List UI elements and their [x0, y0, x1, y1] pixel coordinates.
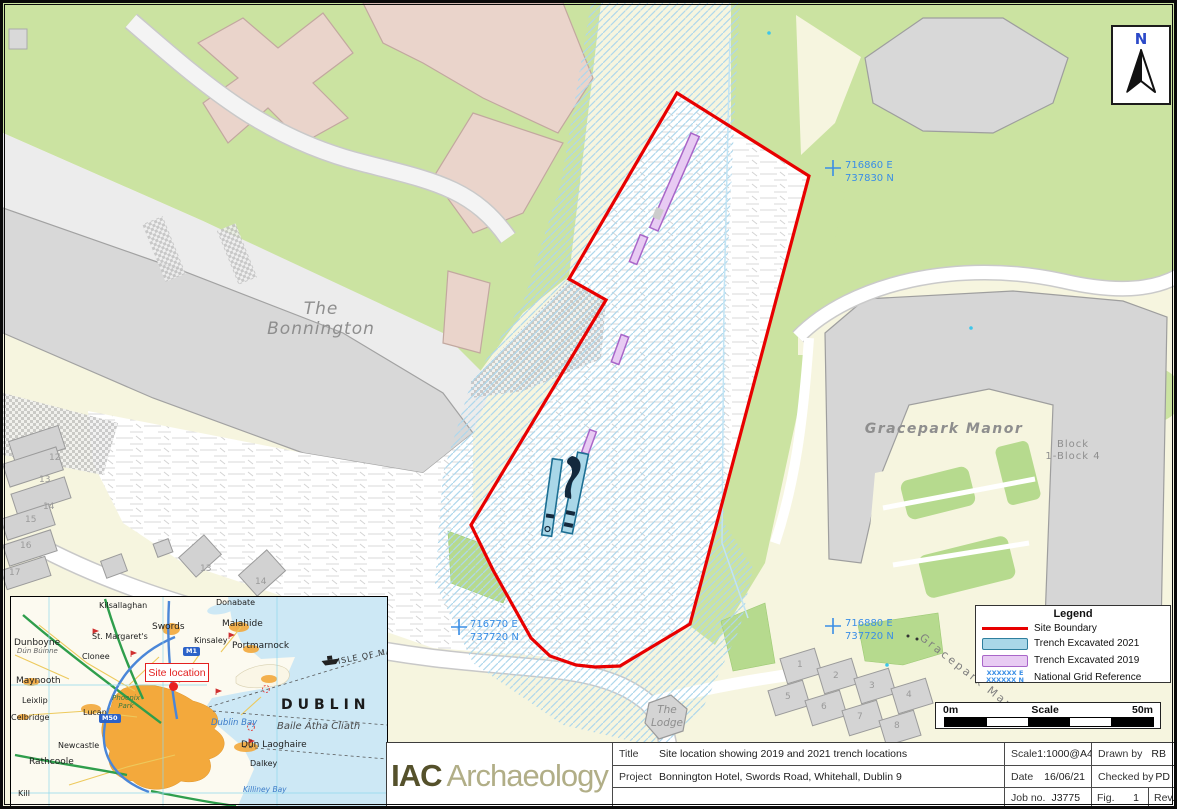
legend-title: Legend	[976, 608, 1170, 620]
date-label: Date	[1011, 771, 1033, 783]
title-label: Title	[619, 748, 659, 760]
house-number: 14	[255, 577, 266, 587]
legend-row-grid-ref: XXXXXX E XXXXXX N National Grid Referenc…	[976, 669, 1170, 685]
house-number: 16	[20, 541, 31, 551]
grid-ref-swatch: XXXXXX E XXXXXX N	[976, 670, 1034, 685]
inset-town: Swords	[152, 622, 185, 632]
figure-sheet: Gracepark Man The Bonnington Gracepark M…	[0, 0, 1177, 809]
fig-value: 1	[1133, 792, 1139, 804]
scale-value: 1:1000@A4	[1037, 748, 1091, 760]
rev-value: -	[1175, 792, 1176, 804]
site-location-marker: Site location	[145, 663, 209, 682]
m50-shield: M50	[99, 714, 121, 723]
scale-cell: Scale 1:1000@A4	[1004, 743, 1091, 765]
inset-town: Rathcoole	[29, 757, 74, 767]
house-number: 14	[43, 502, 54, 512]
project-label: Project	[619, 771, 659, 783]
label-lodge-line1: The	[641, 704, 693, 717]
checked-label: Checked by	[1098, 771, 1153, 783]
inset-town: Kinsaley	[194, 636, 228, 645]
gridref-1-n: 737830 N	[845, 172, 894, 185]
inset-town: Clonee	[82, 652, 110, 661]
label-bonnington: The Bonnington	[241, 299, 401, 340]
checked-cell: Checked by PD	[1091, 765, 1176, 787]
label-lodge: The Lodge	[641, 704, 693, 729]
inset-town: Dún Laoghaire	[241, 740, 307, 750]
scale-label: Scale	[1011, 748, 1037, 760]
inset-town: Kilsallaghan	[99, 601, 147, 610]
inset-killiney-bay: Killiney Bay	[243, 785, 287, 794]
logo: IAC Archaeology	[387, 743, 612, 808]
inset-town-irish: Dún Búinne	[17, 647, 58, 655]
inset-town: Donabate	[216, 598, 255, 607]
job-value: J3775	[1051, 792, 1080, 804]
trench-2021-swatch	[976, 638, 1034, 650]
title-block: IAC Archaeology Title Site location show…	[386, 742, 1175, 807]
title-value: Site location showing 2019 and 2021 tren…	[659, 748, 907, 760]
rev-cell: Rev. -	[1148, 788, 1176, 808]
inset-map: Donabate Kilsallaghan Swords Malahide St…	[10, 596, 388, 809]
checked-value: PD	[1155, 771, 1170, 783]
tl-grey-rect	[9, 29, 27, 49]
legend: Legend Site Boundary Trench Excavated 20…	[975, 605, 1171, 683]
north-arrow-icon	[1121, 48, 1161, 96]
legend-row-trench-2019: Trench Excavated 2019	[976, 652, 1170, 669]
scale-end: 50m	[1132, 704, 1153, 716]
drawn-label: Drawn by	[1098, 748, 1142, 760]
scale-start: 0m	[943, 704, 958, 716]
empty-cell	[612, 787, 1004, 808]
plot-number: 4	[906, 690, 912, 700]
plot-number: 3	[869, 681, 875, 691]
north-label: N	[1135, 30, 1148, 48]
gridref-1: 716860 E 737830 N	[845, 159, 894, 185]
gridref-2-e: 716770 E	[470, 618, 519, 631]
legend-label: National Grid Reference	[1034, 672, 1141, 683]
title-cell: Title Site location showing 2019 and 202…	[612, 743, 1004, 765]
label-block-line2: 1-Block 4	[1031, 451, 1115, 463]
label-gracepark-manor: Gracepark Manor	[861, 421, 1027, 438]
logo-iac: IAC	[391, 758, 441, 794]
gridref-3-e: 716880 E	[845, 617, 894, 630]
legend-label: Trench Excavated 2019	[1034, 655, 1139, 666]
inset-town: Celbridge	[11, 713, 49, 722]
date-cell: Date 16/06/21	[1004, 765, 1091, 787]
house-number: 13	[200, 564, 211, 574]
plot-number: 2	[833, 671, 839, 681]
legend-label: Site Boundary	[1034, 623, 1097, 634]
inset-city-irish: Baile Átha Cliath	[277, 721, 360, 732]
plot-number: 5	[785, 692, 791, 702]
inset-phoenix-park: Phoenix Park	[104, 694, 148, 710]
m1-shield: M1	[183, 647, 200, 656]
inset-city-label: DUBLIN	[281, 697, 371, 713]
fig-rev-cell: Fig. 1 Rev. -	[1091, 787, 1176, 808]
fig-cell: Fig. 1	[1092, 788, 1148, 808]
scale-bar-box: 0m Scale 50m	[935, 702, 1161, 729]
project-value: Bonnington Hotel, Swords Road, Whitehall…	[659, 771, 902, 783]
scale-title: Scale	[1031, 704, 1058, 716]
plot-number: 8	[894, 721, 900, 731]
house-number: 17	[9, 568, 20, 578]
inset-town: Portmarnock	[232, 641, 289, 651]
fig-label: Fig.	[1097, 792, 1115, 804]
inset-town: St. Margaret's	[92, 632, 148, 641]
project-cell: Project Bonnington Hotel, Swords Road, W…	[612, 765, 1004, 787]
gridref-1-e: 716860 E	[845, 159, 894, 172]
drawn-value: RB	[1151, 748, 1166, 760]
inset-town: Kill	[18, 789, 30, 798]
plot-number: 1	[797, 660, 803, 670]
legend-label: Trench Excavated 2021	[1034, 638, 1139, 649]
drawn-cell: Drawn by RB	[1091, 743, 1176, 765]
inset-town: Leixlip	[22, 696, 48, 705]
north-arrow-box: N	[1111, 25, 1171, 105]
plot-number: 6	[821, 702, 827, 712]
label-bonnington-line2: Bonnington	[241, 319, 401, 339]
trench-2019-swatch	[976, 655, 1034, 667]
scale-bar	[944, 717, 1154, 727]
inset-town: Newcastle	[58, 741, 99, 750]
legend-row-site-boundary: Site Boundary	[976, 621, 1170, 635]
inset-town: Maynooth	[16, 676, 61, 686]
logo-archaeology: Archaeology	[447, 758, 608, 794]
grid-ref-sample-n: XXXXXX N	[986, 677, 1024, 685]
rev-label: Rev.	[1154, 792, 1175, 804]
site-location-dot	[169, 682, 178, 691]
job-cell: Job no. J3775	[1004, 787, 1091, 808]
inset-dublin-bay: Dublin Bay	[211, 718, 257, 728]
inset-town: Dalkey	[250, 759, 277, 768]
gridref-3: 716880 E 737720 N	[845, 617, 894, 643]
label-bonnington-line1: The	[241, 299, 401, 319]
inset-town: Malahide	[222, 619, 263, 629]
house-number: 15	[25, 515, 36, 525]
site-boundary-swatch	[976, 627, 1034, 630]
label-block: Block 1-Block 4	[1031, 439, 1115, 463]
gridref-2-n: 737720 N	[470, 631, 519, 644]
gridref-2: 716770 E 737720 N	[470, 618, 519, 644]
label-block-line1: Block	[1031, 439, 1115, 451]
plot-number: 7	[857, 712, 863, 722]
date-value: 16/06/21	[1044, 771, 1085, 783]
gridref-3-n: 737720 N	[845, 630, 894, 643]
job-label: Job no.	[1011, 792, 1045, 804]
label-lodge-line2: Lodge	[641, 717, 693, 730]
house-number: 13	[39, 475, 50, 485]
house-number: 12	[49, 453, 60, 463]
legend-row-trench-2021: Trench Excavated 2021	[976, 635, 1170, 652]
